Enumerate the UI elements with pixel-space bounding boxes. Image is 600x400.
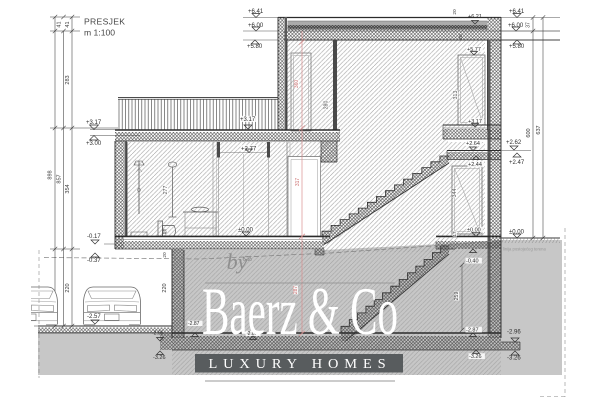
svg-text:20: 20 [452,9,458,15]
svg-text:280: 280 [324,101,330,110]
svg-text:283: 283 [65,75,71,84]
svg-text:41: 41 [65,21,71,27]
svg-text:220: 220 [65,283,71,292]
svg-text:857: 857 [57,174,63,183]
svg-text:20: 20 [162,252,168,258]
svg-text:317: 317 [295,178,301,187]
svg-text:-2.96: -2.96 [152,331,164,337]
svg-text:+6.00: +6.00 [248,23,264,29]
svg-text:-0.17: -0.17 [87,234,101,240]
svg-text:+3.00: +3.00 [86,141,102,147]
svg-text:linija postojećeg terena: linija postojećeg terena [503,247,547,252]
svg-text:+5.77: +5.77 [467,47,481,53]
svg-text:+2.44: +2.44 [468,162,482,168]
svg-text:259: 259 [454,292,460,301]
svg-text:by: by [227,249,248,274]
svg-text:PRESJEK: PRESJEK [84,17,125,27]
svg-text:-2.87: -2.87 [466,328,479,334]
svg-text:+5.80: +5.80 [247,44,263,50]
svg-text:+6.41: +6.41 [509,9,525,15]
svg-text:-3.26: -3.26 [507,356,521,362]
svg-text:+6.41: +6.41 [248,9,264,15]
svg-text:+6.21: +6.21 [468,14,482,20]
svg-text:m 1:100: m 1:100 [84,28,115,38]
svg-text:+5.80: +5.80 [509,44,525,50]
svg-text:+2.64: +2.64 [466,141,480,147]
svg-text:17: 17 [162,229,167,235]
svg-text:-0.40: -0.40 [466,259,479,265]
svg-text:-3.26: -3.26 [469,354,482,360]
svg-text:313: 313 [453,91,459,100]
svg-text:±0.00: ±0.00 [509,230,525,236]
svg-text:+3.17: +3.17 [468,119,482,125]
svg-text:354: 354 [65,184,71,193]
svg-text:17: 17 [452,231,457,237]
svg-text:+3.17: +3.17 [240,117,256,123]
svg-text:-0.37: -0.37 [87,258,101,264]
svg-text:898: 898 [48,170,54,179]
svg-text:20: 20 [458,34,464,40]
svg-text:+2.77: +2.77 [241,147,257,153]
svg-text:±0.00: ±0.00 [238,228,254,234]
svg-text:-3.26: -3.26 [153,355,166,361]
svg-text:41: 41 [57,21,63,27]
svg-text:637: 637 [536,125,542,134]
svg-text:-2.87: -2.87 [188,321,200,327]
svg-text:360: 360 [294,80,300,89]
svg-text:-2.57: -2.57 [87,314,101,320]
svg-text:37: 37 [526,22,532,28]
svg-text:Baerz & Co: Baerz & Co [202,273,398,349]
svg-text:277: 277 [163,186,169,195]
svg-text:220: 220 [162,283,168,292]
svg-text:600: 600 [526,128,532,137]
svg-text:+6.00: +6.00 [508,23,524,29]
svg-text:-2.96: -2.96 [507,330,521,336]
svg-text:344: 344 [452,189,458,198]
svg-text:+2.47: +2.47 [509,160,525,166]
svg-text:+2.62: +2.62 [506,140,522,146]
svg-text:LUXURY HOMES: LUXURY HOMES [209,356,392,371]
